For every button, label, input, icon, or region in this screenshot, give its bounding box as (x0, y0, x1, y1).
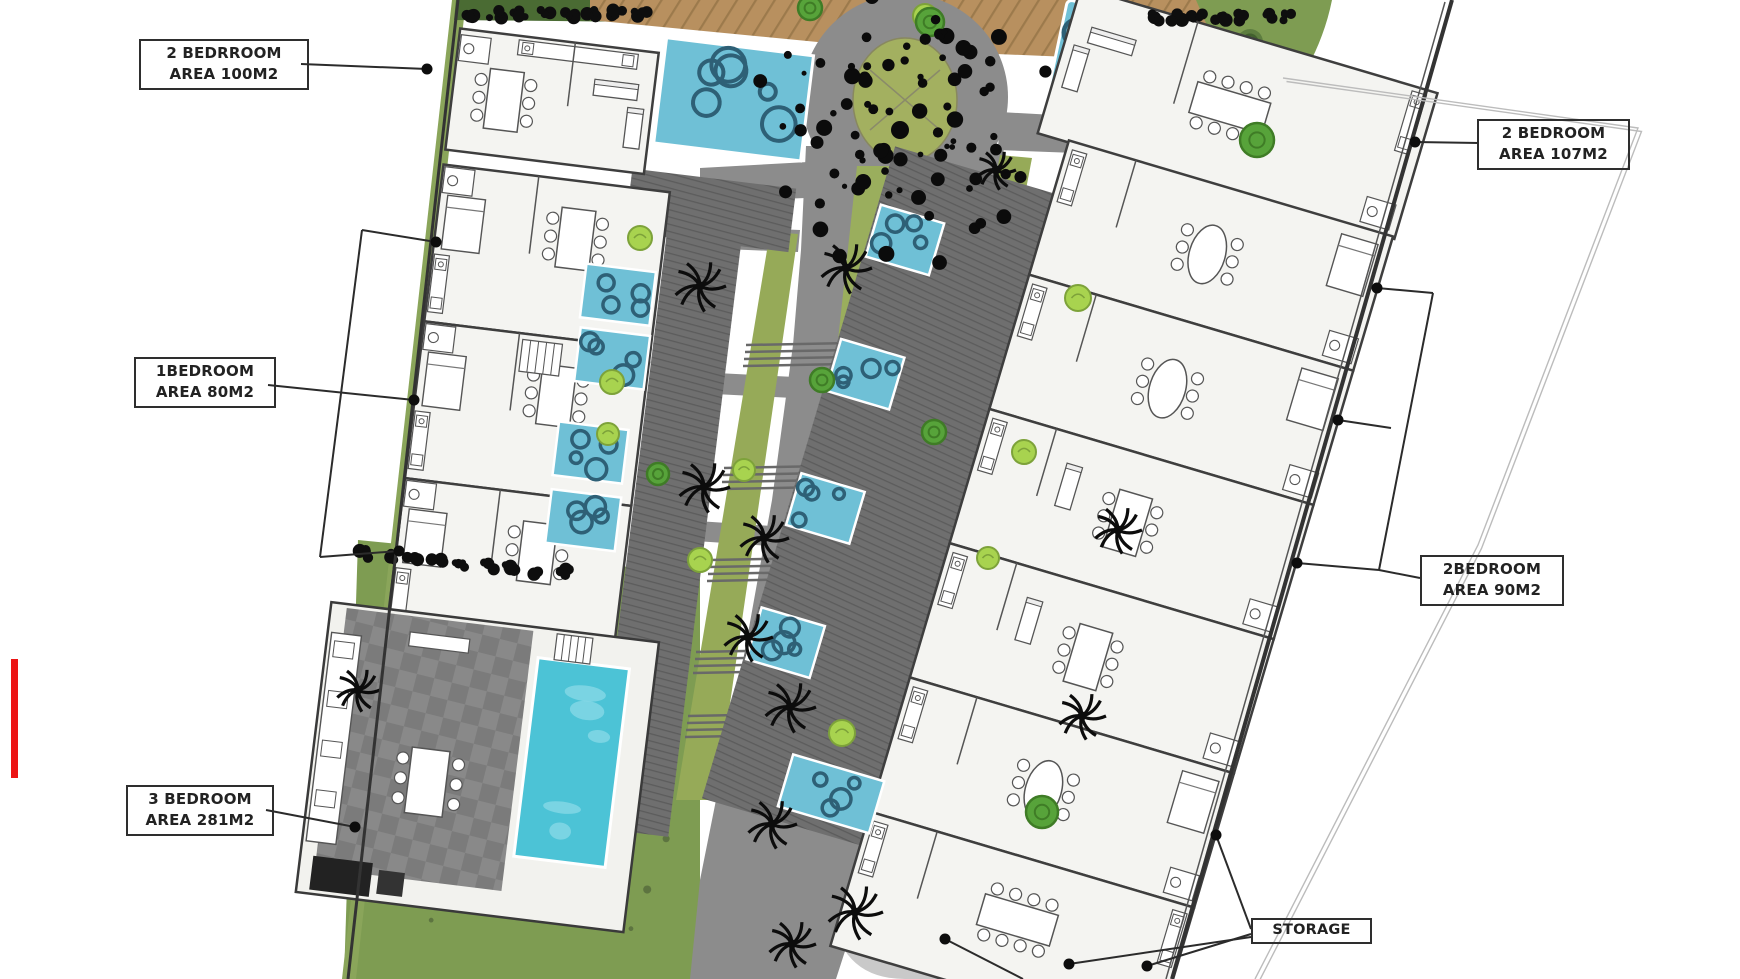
storage-label: STORAGE (1251, 918, 1372, 944)
unit-label-2-bedroom-100m2: 2 BEDRROOM AREA 100M2 (139, 39, 309, 90)
unit-type-text: 2BEDROOM (1426, 559, 1558, 580)
unit-type-text: 1BEDROOM (140, 361, 270, 382)
site-plan-page: 2 BEDRROOM AREA 100M2 2 BEDROOM AREA 107… (0, 0, 1740, 979)
unit-label-2-bedroom-107m2: 2 BEDROOM AREA 107M2 (1477, 119, 1630, 170)
villa-3-bedroom (296, 602, 659, 932)
unit-label-2-bedroom-90m2: 2BEDROOM AREA 90M2 (1420, 555, 1564, 606)
unit-area-text: AREA 80M2 (140, 382, 270, 403)
unit-type-text: 2 BEDRROOM (145, 43, 303, 64)
red-marker-bar (11, 659, 18, 778)
unit-type-text: 3 BEDROOM (132, 789, 268, 810)
unit-label-3-bedroom-281m2: 3 BEDROOM AREA 281M2 (126, 785, 274, 836)
unit-area-text: AREA 100M2 (145, 64, 303, 85)
unit-area-text: AREA 281M2 (132, 810, 268, 831)
unit-area-text: AREA 107M2 (1483, 144, 1624, 165)
unit-type-text: 2 BEDROOM (1483, 123, 1624, 144)
plan-graphics (266, 0, 1642, 979)
unit-label-1-bedroom-80m2: 1BEDROOM AREA 80M2 (134, 357, 276, 408)
storage-text: STORAGE (1257, 920, 1366, 942)
unit-area-text: AREA 90M2 (1426, 580, 1558, 601)
